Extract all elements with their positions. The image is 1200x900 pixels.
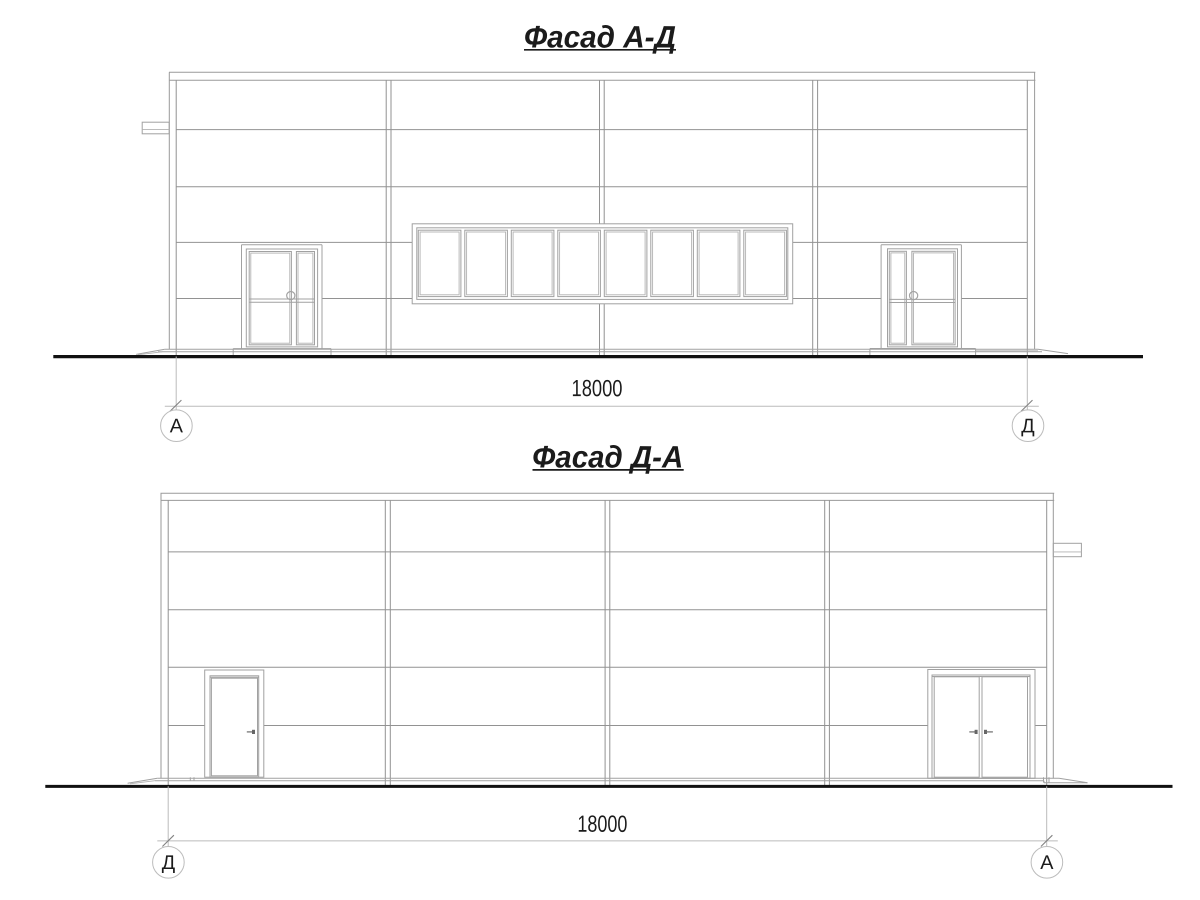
svg-text:А: А — [170, 415, 184, 437]
svg-text:18000: 18000 — [577, 811, 627, 837]
svg-text:18000: 18000 — [571, 375, 622, 401]
svg-text:А: А — [1040, 852, 1054, 874]
svg-text:Д: Д — [1021, 415, 1035, 437]
svg-text:Д: Д — [162, 852, 176, 874]
